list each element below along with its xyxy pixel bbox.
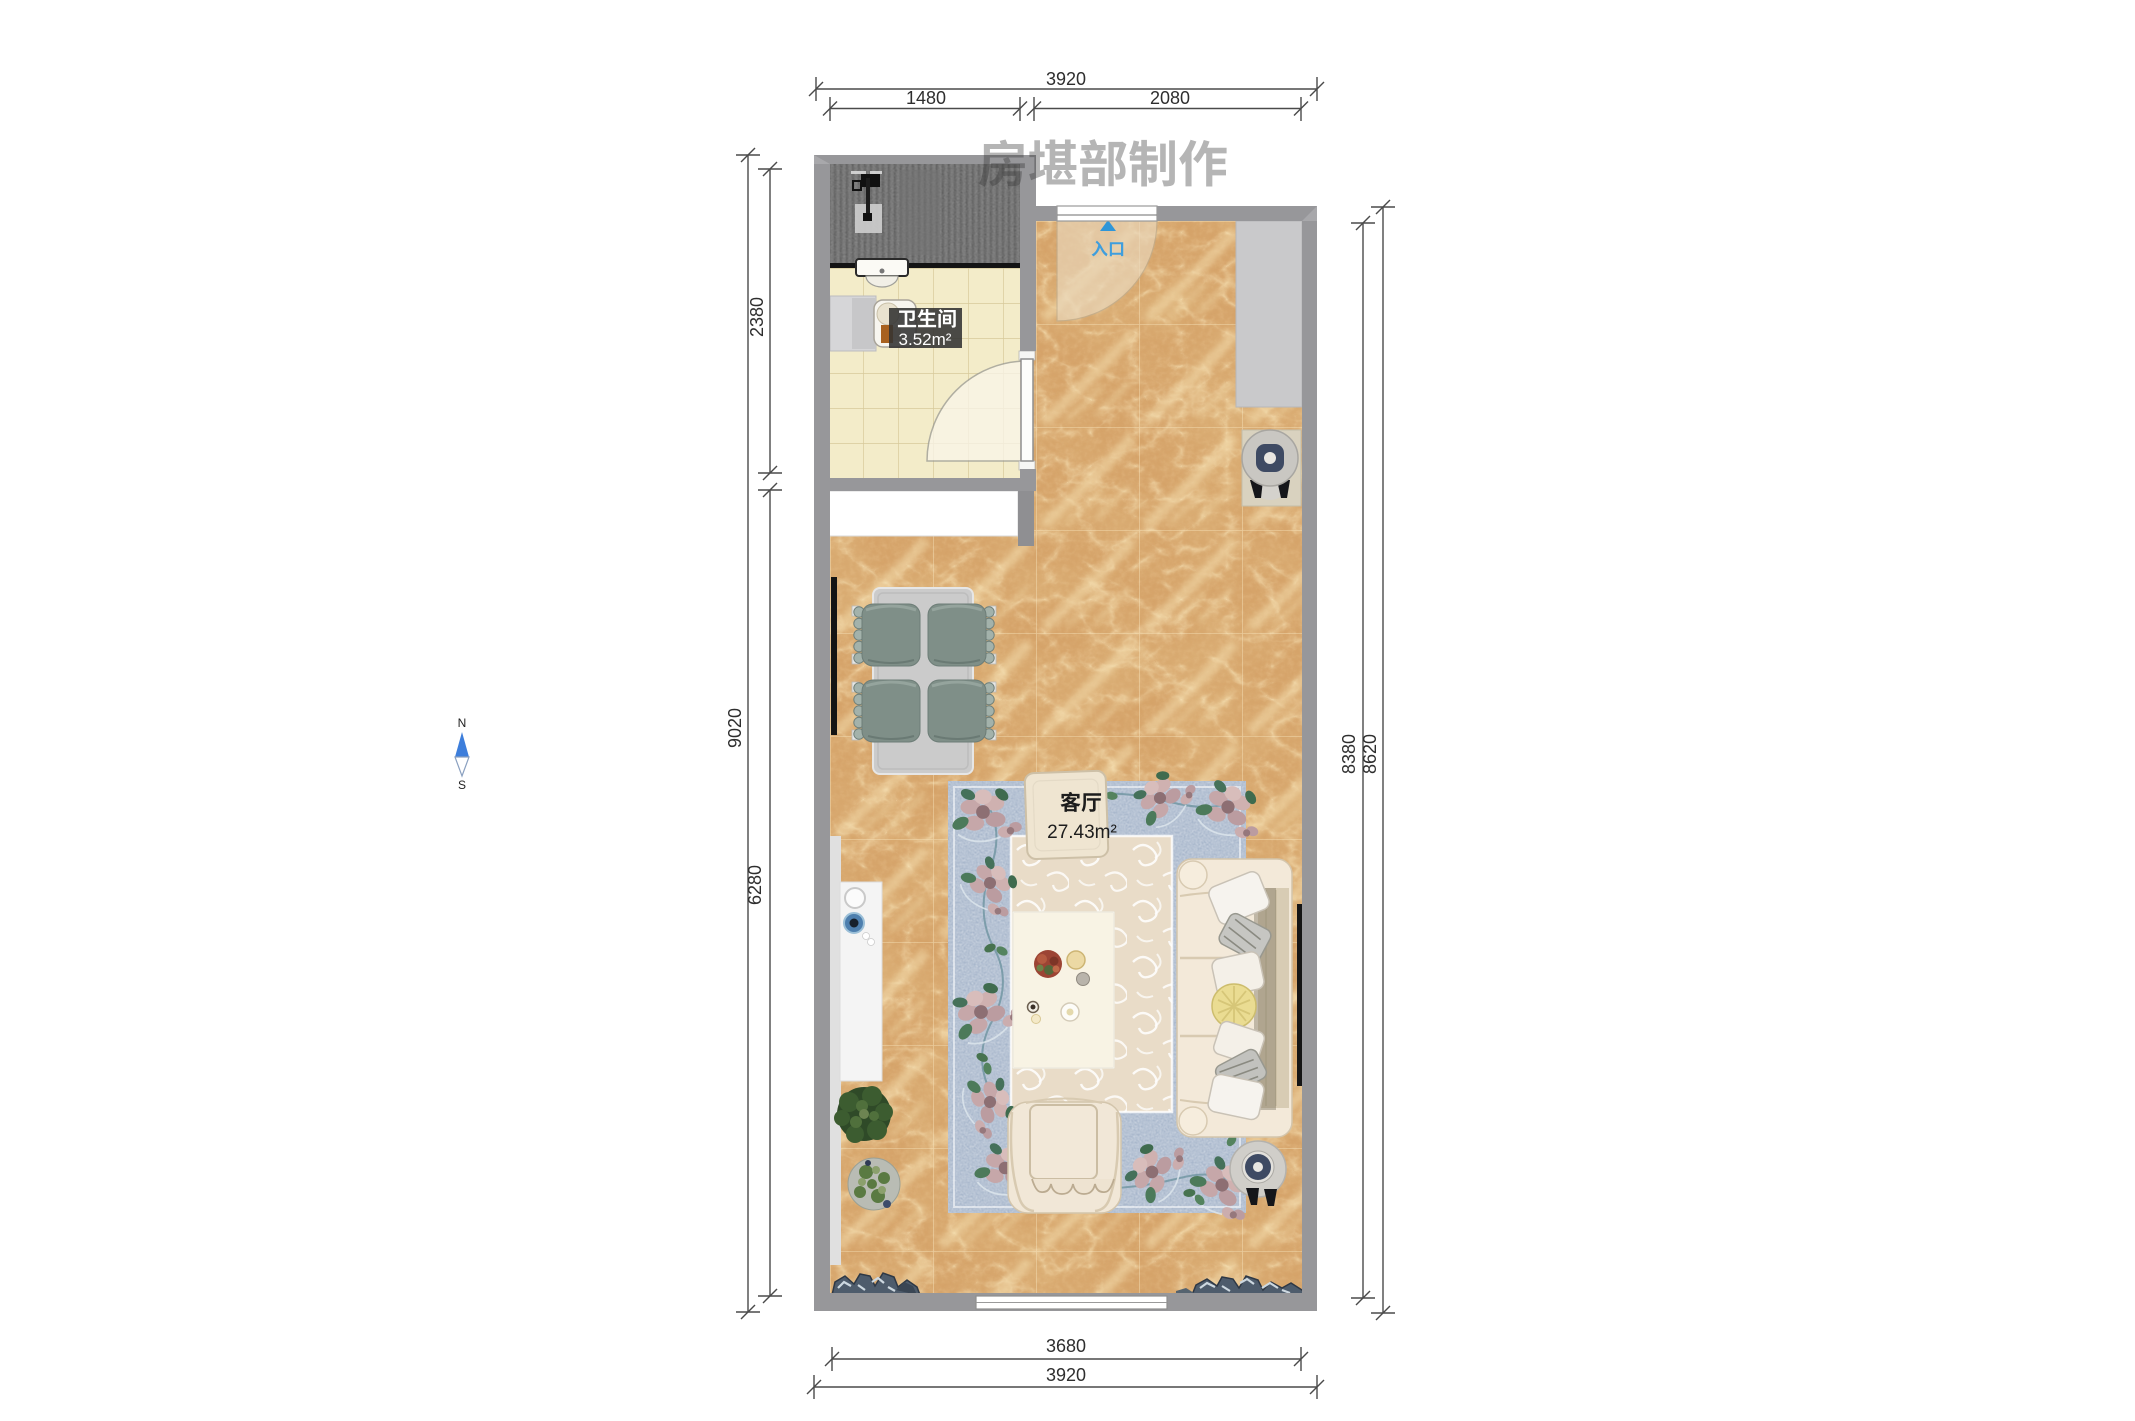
svg-text:2380: 2380 (747, 297, 767, 337)
svg-text:1480: 1480 (906, 88, 946, 108)
svg-text:8380: 8380 (1339, 734, 1359, 774)
svg-text:3920: 3920 (1046, 1365, 1086, 1385)
svg-text:3920: 3920 (1046, 69, 1086, 89)
svg-text:8620: 8620 (1360, 734, 1380, 774)
svg-text:N: N (458, 716, 467, 730)
svg-text:3.52m²: 3.52m² (899, 330, 952, 349)
svg-text:S: S (458, 778, 466, 792)
svg-text:3680: 3680 (1046, 1336, 1086, 1356)
svg-text:2080: 2080 (1150, 88, 1190, 108)
svg-text:9020: 9020 (725, 708, 745, 748)
svg-text:27.43m²: 27.43m² (1047, 822, 1117, 843)
svg-text:6280: 6280 (745, 865, 765, 905)
